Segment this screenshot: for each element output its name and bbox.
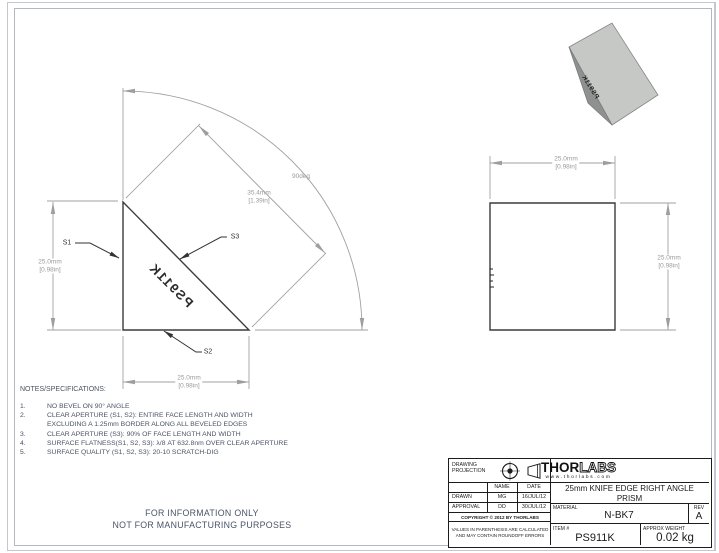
- note-item: 3. CLEAR APERTURE (S3): 90% OF FACE LENG…: [20, 430, 420, 439]
- rev-value: A: [696, 511, 703, 522]
- copyright-text: COPYRIGHT © 2012 BY THORLABS: [461, 515, 539, 520]
- tb-line: [487, 482, 488, 512]
- approval-name: DD: [498, 504, 506, 510]
- note-item: 5. SURFACE QUALITY (S1, S2, S3): 20-10 S…: [20, 448, 420, 457]
- drawn-label: DRAWN: [452, 494, 472, 500]
- note-item: 2. CLEAR APERTURE (S1, S2): ENTIRE FACE …: [20, 411, 420, 429]
- surface-label-s1: S1: [63, 240, 72, 247]
- tb-line: [449, 502, 551, 503]
- drawing-sheet: PS911K S1 S2 S3 90deg 35.4mm [1.39in] 25…: [0, 0, 719, 553]
- item-label: ITEM #: [553, 526, 569, 532]
- tb-line: [449, 521, 551, 522]
- info-line-1: FOR INFORMATION ONLY: [57, 508, 347, 520]
- notes-heading: NOTES/SPECIFICATIONS:: [20, 386, 420, 393]
- tb-line: [550, 523, 709, 524]
- projection-cone-icon: [528, 464, 540, 478]
- front-height-dimension: 25.0mm [0.98in]: [655, 254, 682, 269]
- tb-line: [449, 482, 551, 483]
- side-view-dimensions: [47, 88, 368, 389]
- thorlabs-logo: THORLABS www.thorlabs.com: [541, 461, 616, 480]
- surface-leader-lines: [75, 237, 227, 352]
- tb-line: [688, 503, 689, 523]
- weight-value: 0.02 kg: [656, 532, 694, 544]
- side-angle-dimension: 90deg: [292, 173, 310, 181]
- tb-line: [449, 492, 551, 493]
- information-only-stamp: FOR INFORMATION ONLY NOT FOR MANUFACTURI…: [57, 508, 347, 532]
- material-value: N-BK7: [604, 510, 633, 521]
- side-view-outline: [123, 202, 249, 330]
- tb-line: [550, 482, 709, 483]
- approval-date: 30/JUL/12: [522, 504, 546, 510]
- side-hypotenuse-dimension: 35.4mm [1.39in]: [247, 189, 270, 204]
- drawn-date: 16/JUL/12: [522, 494, 546, 500]
- projection-label: DRAWING PROJECTION: [452, 462, 485, 474]
- projection-symbols: [499, 461, 547, 481]
- note-item: 1. NO BEVEL ON 90° ANGLE: [20, 402, 420, 411]
- iso-view-prism: [569, 23, 658, 125]
- surface-label-s3: S3: [231, 234, 240, 241]
- side-height-dimension: 25.0mm [0.98in]: [36, 258, 63, 273]
- front-view-dimensions: [490, 156, 676, 330]
- item-value: PS911K: [575, 532, 615, 544]
- tb-line: [640, 523, 641, 545]
- tb-line: [550, 503, 709, 504]
- drawn-name: MG: [498, 494, 507, 500]
- info-line-2: NOT FOR MANUFACTURING PURPOSES: [57, 520, 347, 532]
- material-label: MATERIAL: [553, 505, 578, 511]
- front-width-dimension: 25.0mm [0.98in]: [552, 155, 579, 170]
- name-header: NAME: [494, 484, 509, 490]
- title-block: DRAWING PROJECTION NAME DATE DRAWN MG 16…: [448, 458, 712, 548]
- tb-line: [517, 482, 518, 512]
- note-item: 4. SURFACE FLATNESS(S1, S2, S3): λ/8 AT …: [20, 439, 420, 448]
- front-view-outline: [490, 203, 615, 330]
- tb-line: [449, 512, 551, 513]
- date-header: DATE: [527, 484, 541, 490]
- thorlabs-url: www.thorlabs.com: [541, 475, 616, 480]
- disclaimer-text: VALUES IN PARENTHESIS ARE CALCULATED AND…: [452, 527, 549, 538]
- notes-section: NOTES/SPECIFICATIONS: 1. NO BEVEL ON 90°…: [20, 386, 420, 457]
- drawing-title: 25mm KNIFE EDGE RIGHT ANGLE PRISM: [565, 484, 694, 503]
- notes-list: 1. NO BEVEL ON 90° ANGLE 2. CLEAR APERTU…: [20, 402, 420, 457]
- projection-target-icon: [500, 462, 520, 481]
- surface-label-s2: S2: [204, 349, 213, 356]
- approval-label: APPROVAL: [452, 504, 480, 510]
